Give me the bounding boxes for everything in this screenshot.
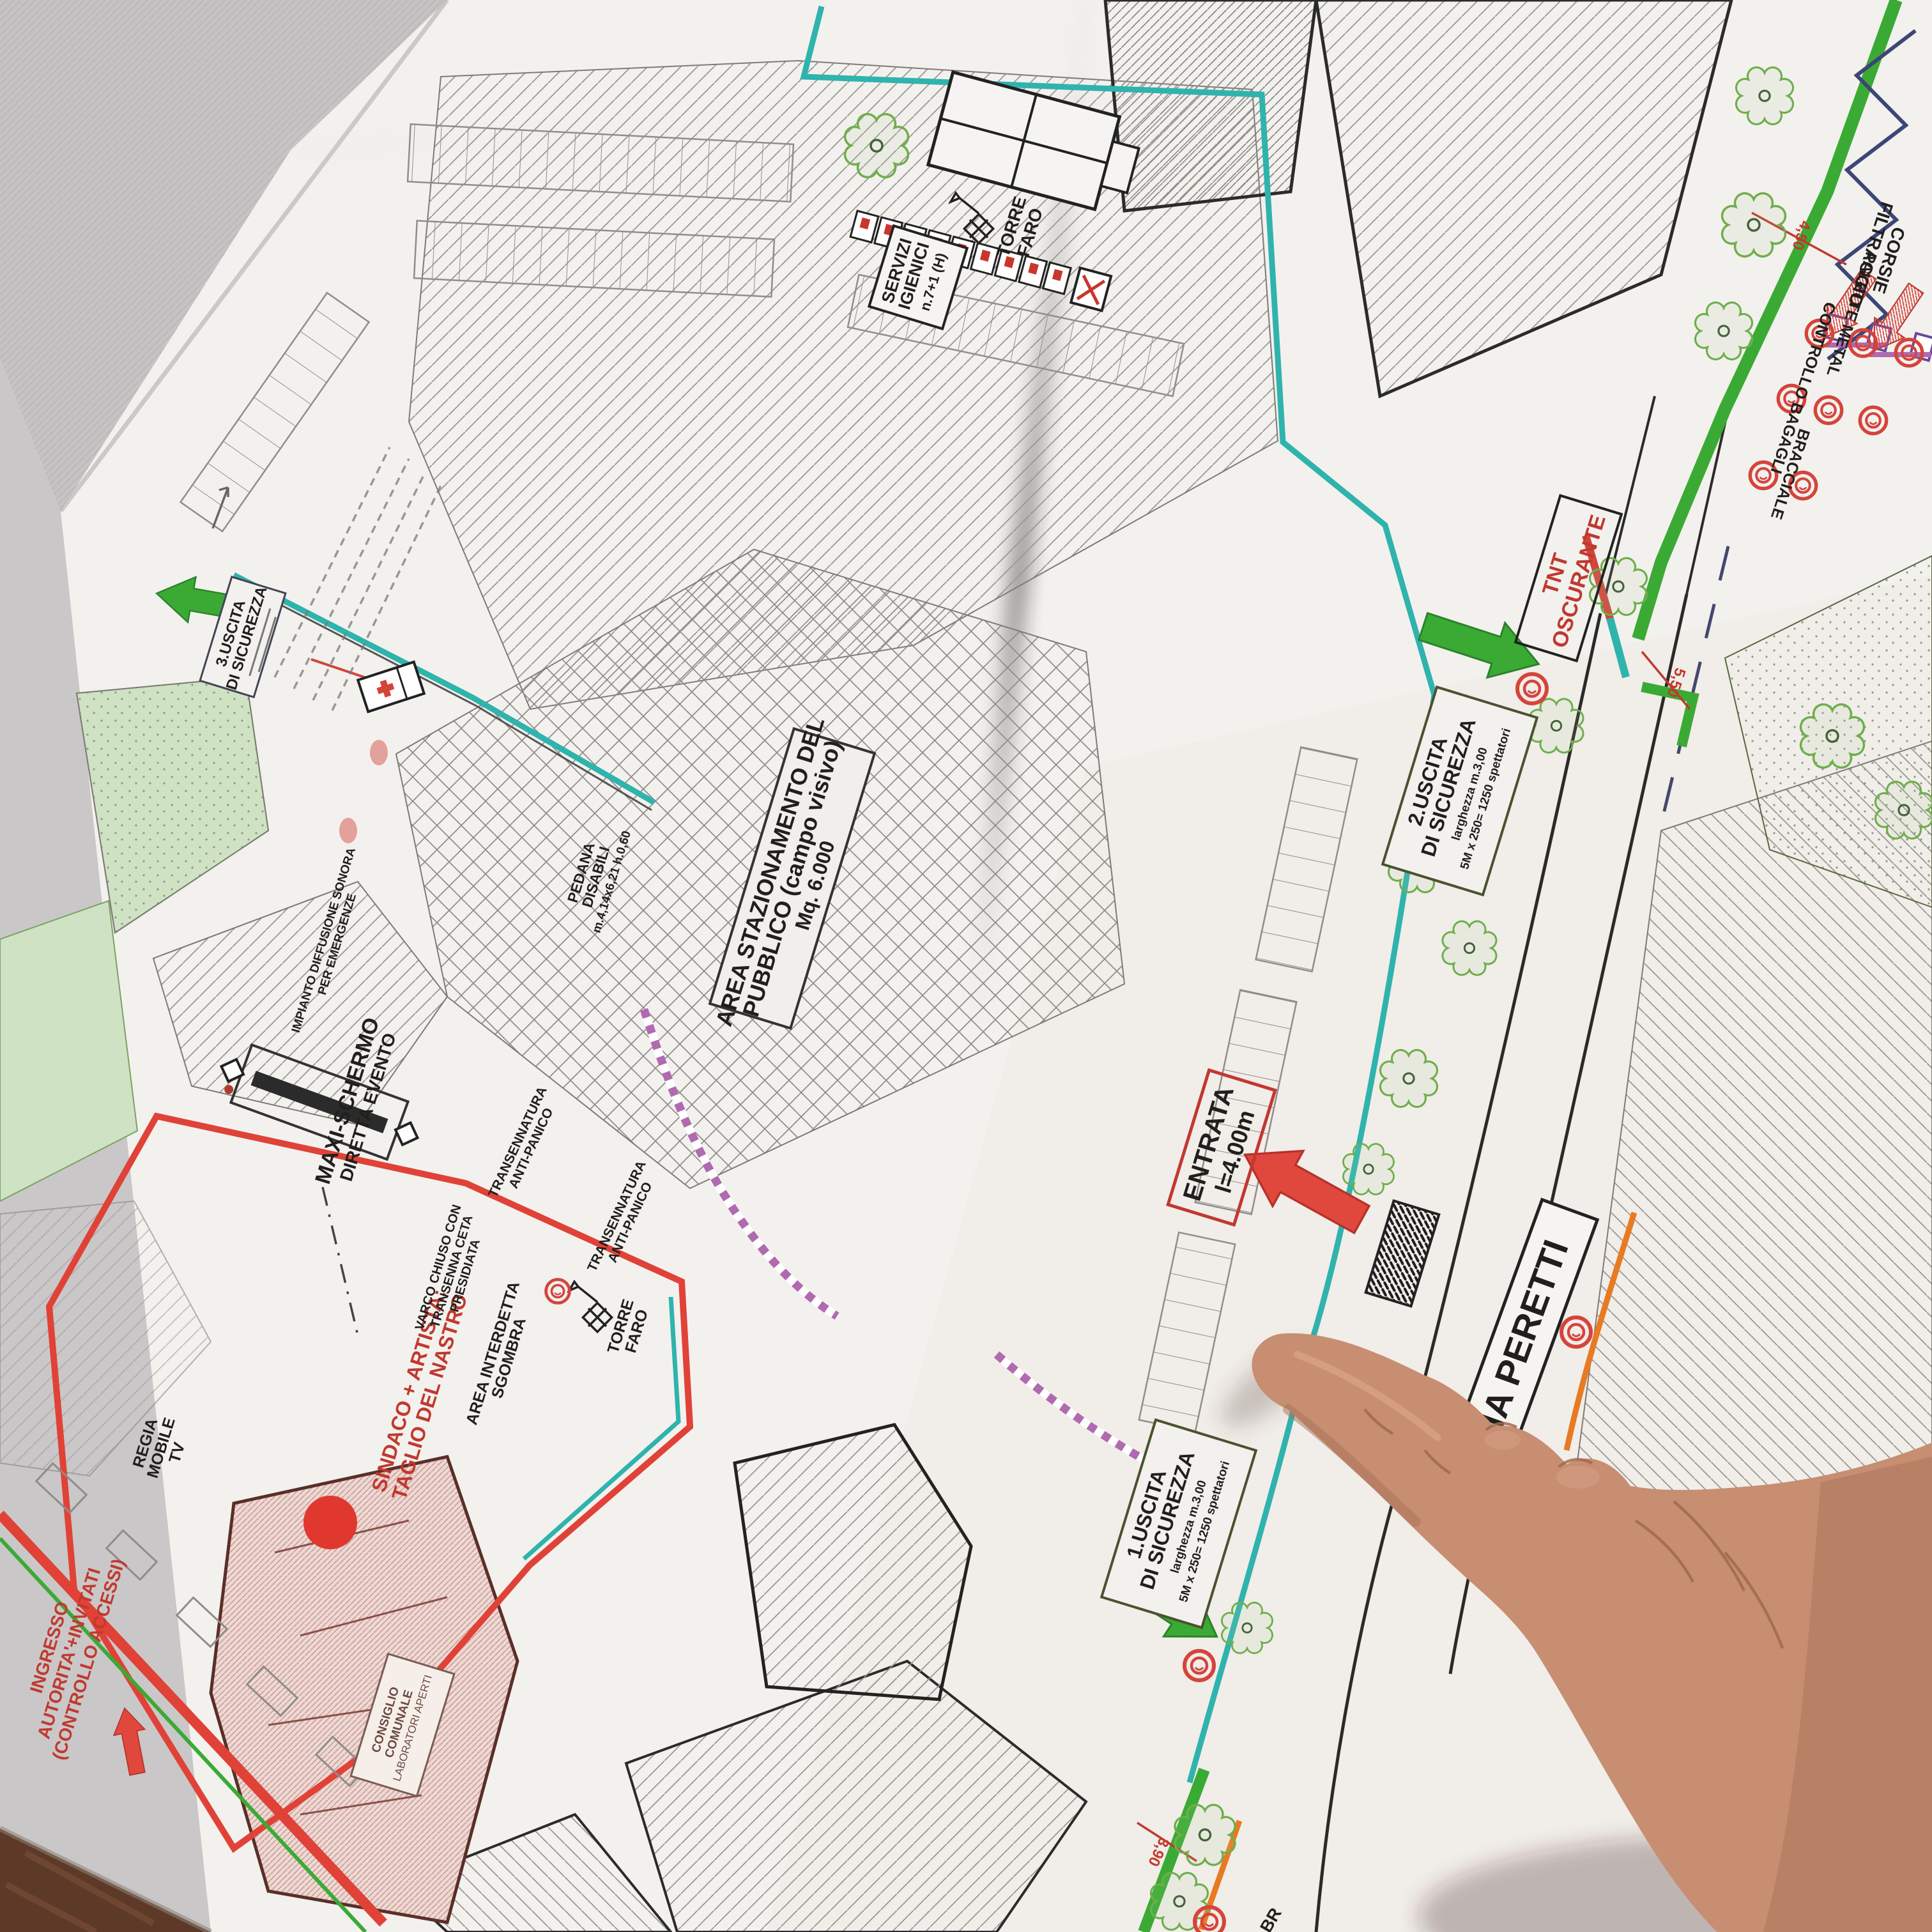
small-marker [370,740,388,765]
small-marker [339,818,357,843]
site-plan-canvas: SERVIZI IGIENICI n.7+1 (H) TORRE FARO AR… [0,0,1932,1932]
building-north [1105,0,1316,211]
ribbon-cut-point [303,1496,357,1549]
photo-of-site-plan: SERVIZI IGIENICI n.7+1 (H) TORRE FARO AR… [0,0,1932,1932]
knuckle-highlight [1485,1430,1521,1450]
knuckle-highlight [1556,1466,1600,1489]
